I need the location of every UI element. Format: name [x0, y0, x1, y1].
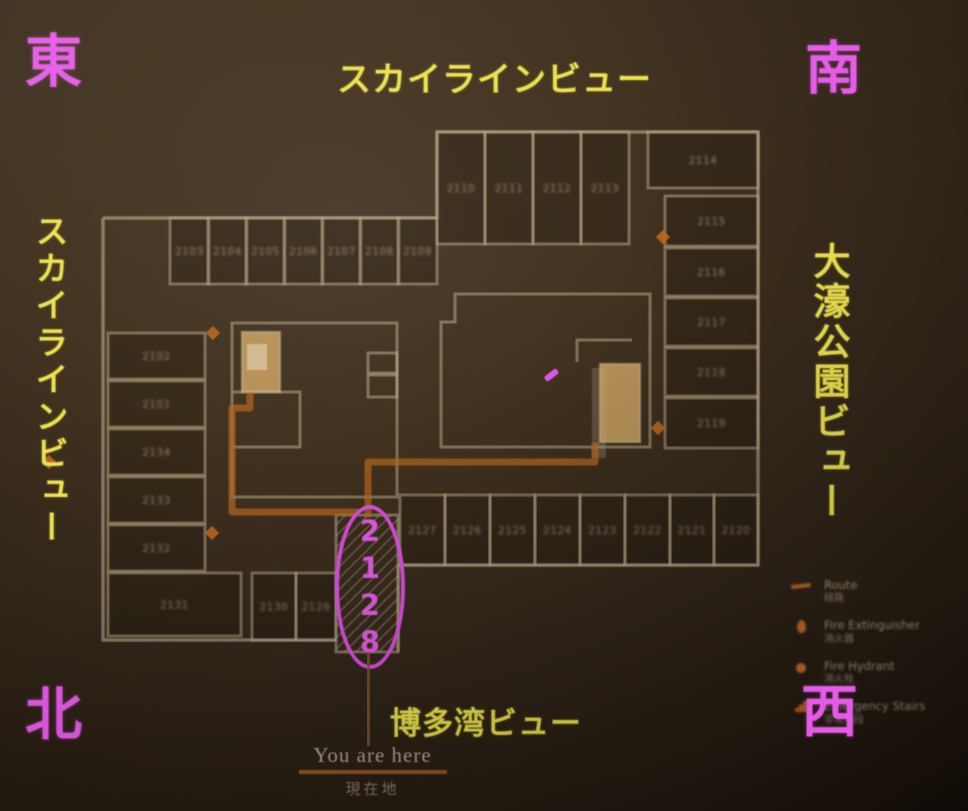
- room-number: 2113: [591, 183, 620, 195]
- legend-label-en: Fire Hydrant: [824, 659, 895, 673]
- room-number: 2110: [447, 183, 476, 195]
- room-number: 2111: [495, 183, 524, 195]
- fire-equipment-marker: [651, 421, 665, 435]
- left-elevator-lobby: [233, 392, 300, 447]
- compass-east: 東: [25, 34, 82, 91]
- room-number: 2106: [289, 246, 318, 258]
- room-2128-digit: 1: [360, 554, 380, 583]
- room-number: 2121: [678, 525, 707, 537]
- room-number: 2114: [689, 155, 718, 167]
- room-number: 2127: [408, 525, 437, 537]
- room-number: 2126: [453, 525, 482, 537]
- room-number: 2119: [697, 418, 726, 430]
- room-2128-circle-annotation: 2 1 2 8: [335, 505, 405, 669]
- floor-map-sign-photo: { "compass": { "top_left": "東", "top_rig…: [0, 0, 968, 811]
- view-label-top: スカイラインビュー: [337, 52, 652, 101]
- view-label-bottom: 博多湾ビュー: [390, 698, 582, 743]
- compass-south: 南: [805, 41, 862, 98]
- rooms: 2103210421052106210721082109211021112112…: [108, 132, 758, 652]
- room-number: 2105: [251, 246, 280, 258]
- room-number: 2104: [213, 246, 242, 258]
- legend-label-en: Fire Extinguisher: [824, 618, 920, 632]
- legend-item-fire-extinguisher: Fire Extinguisher 消火器: [790, 618, 965, 645]
- room-number: 2120: [722, 525, 751, 537]
- building-cores: [232, 294, 650, 497]
- room-number: 2130: [260, 602, 289, 614]
- room-number: 2108: [365, 246, 394, 258]
- view-label-right: 大濠公園ビュー: [801, 242, 855, 522]
- you-are-here-text-ja: 現在地: [290, 778, 455, 799]
- room-number: 2101: [142, 399, 171, 411]
- room-number: 2132: [142, 543, 171, 555]
- room-number: 2122: [633, 525, 662, 537]
- route-path: [232, 396, 355, 512]
- fire-extinguisher-icon: [797, 620, 806, 633]
- left-core-room: [368, 375, 397, 397]
- room-2128-digit: 8: [360, 628, 380, 657]
- fire-equipment-marker: [206, 326, 220, 340]
- room-number: 2109: [403, 246, 432, 258]
- room-number: 2115: [697, 216, 726, 228]
- room-number: 2125: [498, 525, 527, 537]
- legend-label-en: Route: [824, 578, 857, 592]
- route-line-icon: [791, 583, 811, 589]
- legend-item-route: Route 経路: [790, 578, 965, 605]
- room-number: 2134: [142, 447, 171, 459]
- stairwell-steps: [247, 344, 267, 370]
- you-are-here-pointer-line: [367, 652, 370, 746]
- room-number: 2107: [327, 246, 356, 258]
- view-label-left: スカイラインビュー: [25, 214, 73, 547]
- stairwell: [600, 364, 640, 442]
- room-number: 2129: [302, 602, 331, 614]
- room-number: 2103: [175, 246, 204, 258]
- right-stair-outline: [577, 340, 632, 362]
- you-are-here-text-en: You are here: [290, 744, 455, 767]
- room-number: 2124: [543, 525, 572, 537]
- room-number: 2123: [588, 525, 617, 537]
- legend-label-ja: 経路: [824, 592, 857, 605]
- you-are-here: You are here 現在地: [290, 744, 455, 799]
- room-2128-digit: 2: [360, 591, 380, 620]
- you-are-here-underline: [299, 770, 447, 774]
- fire-hydrant-icon: [796, 663, 806, 673]
- room-number: 2131: [160, 600, 189, 612]
- room-number: 2133: [142, 495, 171, 507]
- room-number: 2118: [697, 367, 726, 379]
- room-2128-digit: 2: [360, 517, 380, 546]
- room-number: 2112: [543, 183, 572, 195]
- compass-west: 西: [801, 684, 858, 741]
- legend-label-ja: 消火器: [824, 633, 920, 646]
- compass-north: 北: [25, 687, 82, 744]
- fire-equipment-marker: [205, 526, 219, 540]
- room-number: 2117: [697, 317, 726, 329]
- room-number: 2116: [697, 267, 726, 279]
- left-core-room: [368, 353, 397, 373]
- room-number: 2102: [142, 351, 171, 363]
